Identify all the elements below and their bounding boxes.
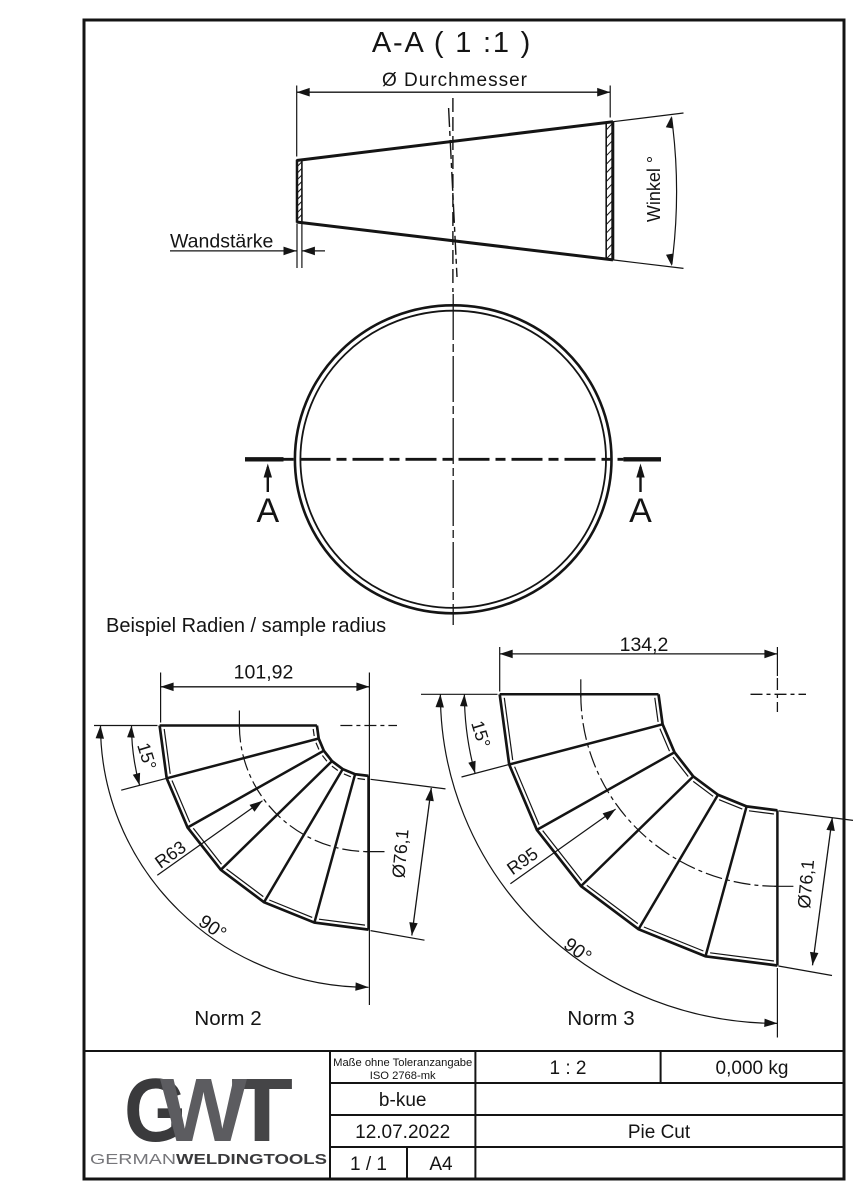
svg-text:Maße ohne Toleranzangabe: Maße ohne Toleranzangabe <box>333 1057 472 1069</box>
svg-text:ISO 2768-mk: ISO 2768-mk <box>370 1070 436 1082</box>
svg-text:GERMAN: GERMAN <box>90 1152 176 1168</box>
svg-text:WELDINGTOOLS: WELDINGTOOLS <box>176 1152 327 1168</box>
svg-text:Ø76,1: Ø76,1 <box>388 828 412 879</box>
svg-text:Winkel °: Winkel ° <box>644 156 664 222</box>
svg-text:A-A ( 1 :1 ): A-A ( 1 :1 ) <box>372 27 532 59</box>
svg-text:W: W <box>160 1061 247 1161</box>
svg-text:12.07.2022: 12.07.2022 <box>355 1122 450 1143</box>
svg-text:101,92: 101,92 <box>234 662 294 684</box>
svg-text:Ø Durchmesser: Ø Durchmesser <box>382 70 528 91</box>
svg-text:1 : 2: 1 : 2 <box>550 1058 587 1079</box>
svg-text:Wandstärke: Wandstärke <box>170 231 273 253</box>
svg-text:Ø76,1: Ø76,1 <box>794 859 818 910</box>
svg-text:134,2: 134,2 <box>620 634 669 656</box>
svg-text:A: A <box>629 492 652 530</box>
svg-text:Norm 2: Norm 2 <box>194 1007 261 1030</box>
svg-text:Pie Cut: Pie Cut <box>628 1122 691 1143</box>
svg-text:1 / 1: 1 / 1 <box>350 1154 387 1175</box>
svg-text:b-kue: b-kue <box>379 1090 427 1111</box>
svg-text:Norm 3: Norm 3 <box>567 1007 634 1030</box>
svg-text:Beispiel Radien / sample radiu: Beispiel Radien / sample radius <box>106 615 386 637</box>
svg-text:A4: A4 <box>429 1154 453 1175</box>
svg-text:A: A <box>256 492 279 530</box>
svg-text:0,000 kg: 0,000 kg <box>716 1058 789 1079</box>
